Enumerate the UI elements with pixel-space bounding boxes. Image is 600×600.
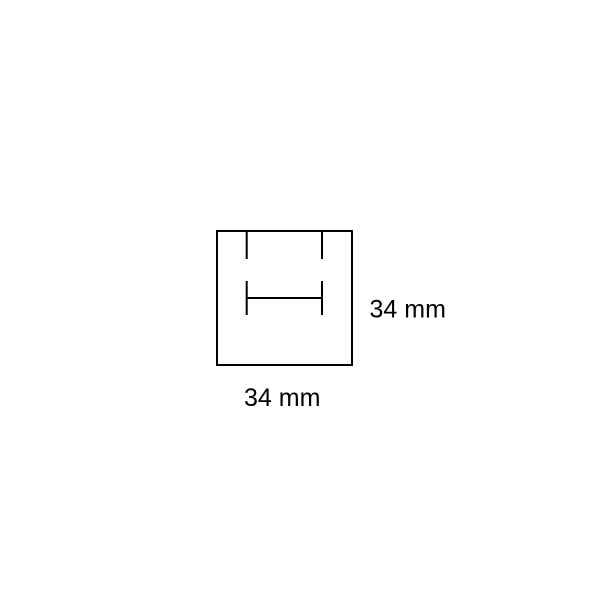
svg-text:34 mm: 34 mm (370, 296, 446, 324)
svg-text:34 mm: 34 mm (244, 384, 320, 412)
